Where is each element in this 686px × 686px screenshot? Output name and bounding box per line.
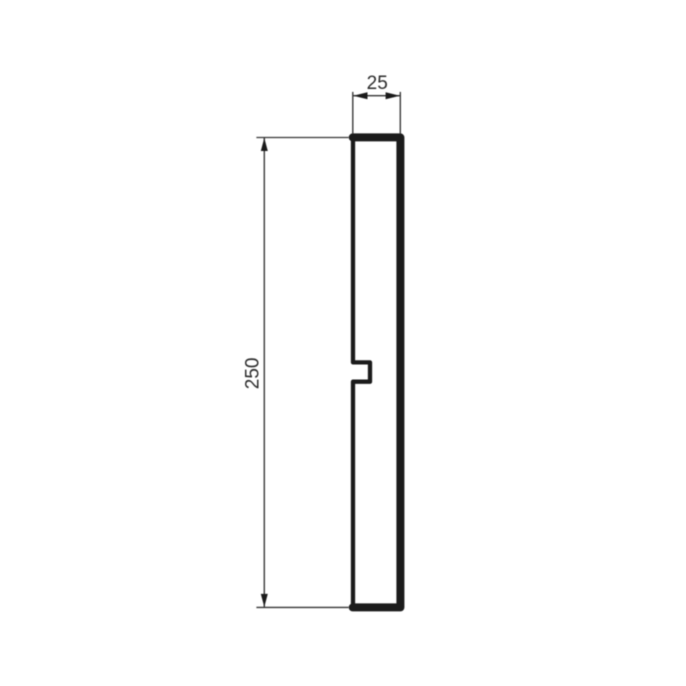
svg-text:250: 250 xyxy=(243,358,264,390)
svg-text:25: 25 xyxy=(367,73,388,94)
